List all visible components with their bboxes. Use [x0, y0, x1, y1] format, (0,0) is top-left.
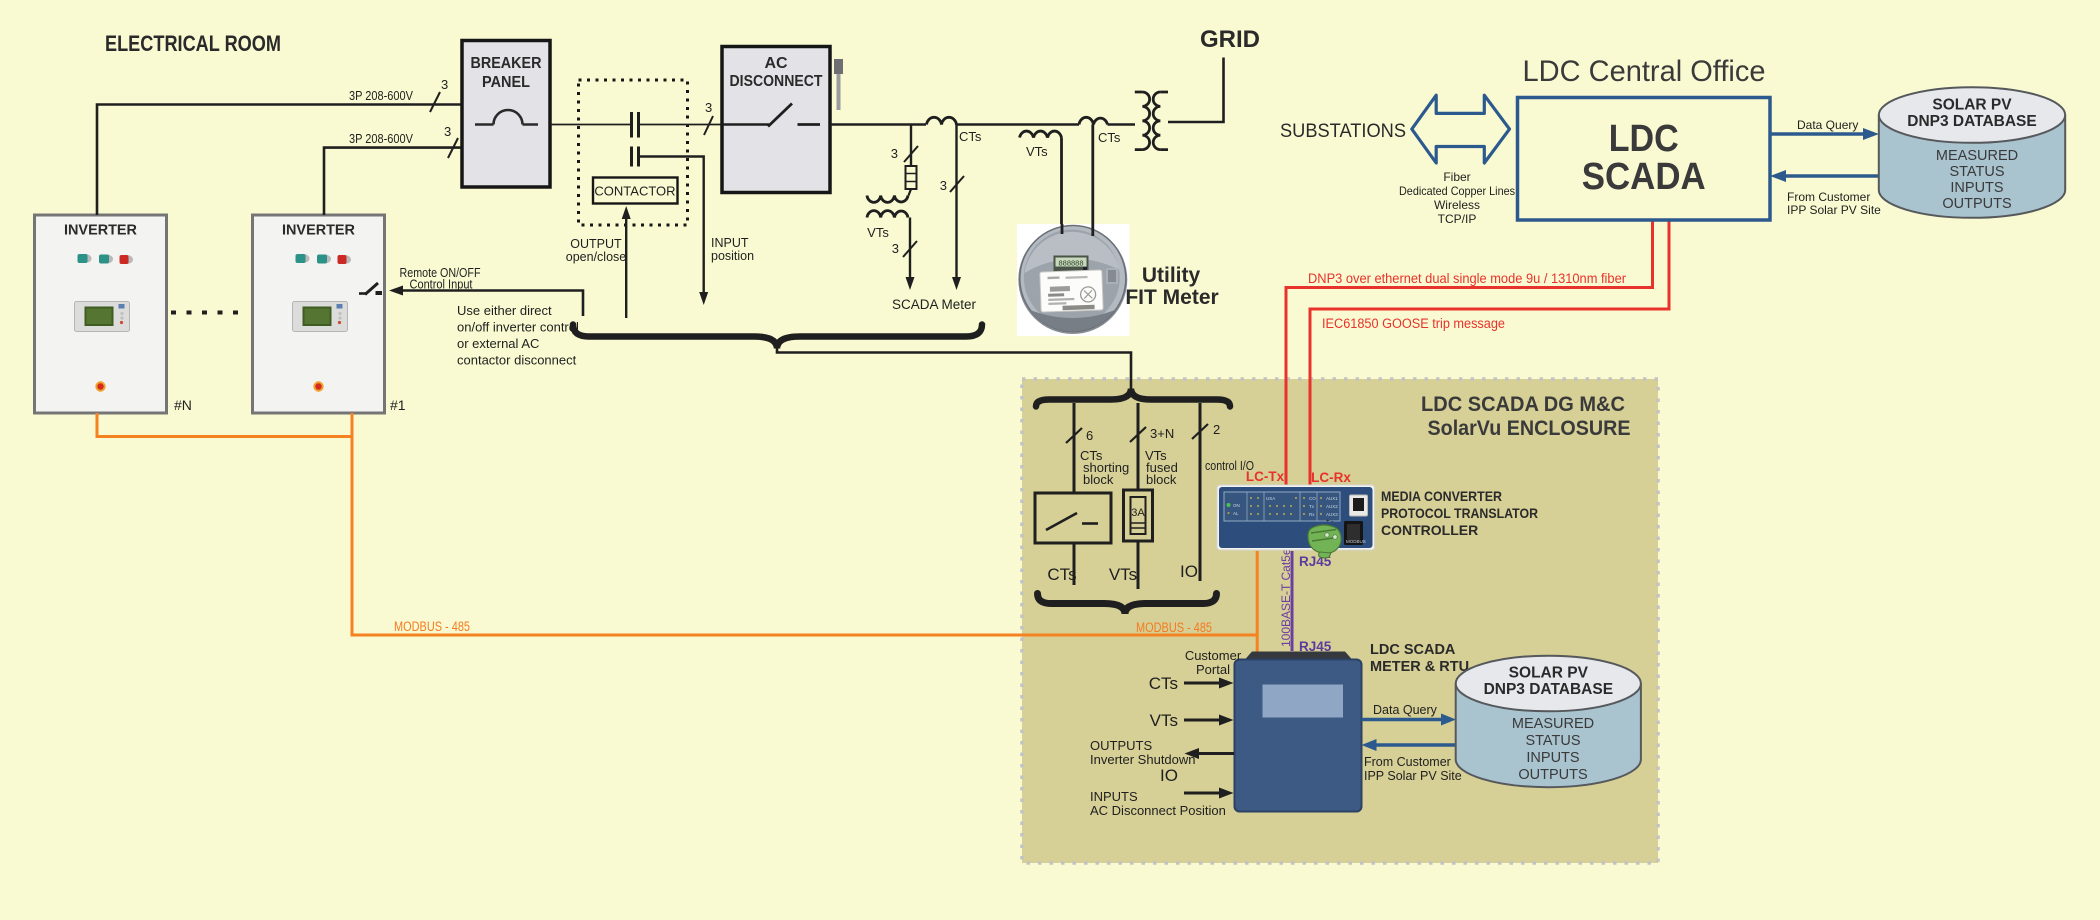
- svg-text:PANEL: PANEL: [482, 74, 530, 91]
- svg-text:Utility: Utility: [1142, 264, 1201, 287]
- svg-text:BREAKER: BREAKER: [471, 55, 542, 72]
- svg-text:Wireless: Wireless: [1434, 198, 1480, 212]
- svg-text:100BASE-T Cat5e: 100BASE-T Cat5e: [1279, 548, 1293, 647]
- svg-text:Inverter Shutdown: Inverter Shutdown: [1090, 752, 1196, 767]
- svg-text:STATUS: STATUS: [1949, 164, 2004, 180]
- svg-text:From Customer: From Customer: [1364, 755, 1451, 769]
- svg-text:#1: #1: [390, 397, 406, 413]
- svg-text:SCADA Meter: SCADA Meter: [892, 297, 977, 312]
- svg-text:3: 3: [892, 241, 899, 256]
- svg-text:Tx: Tx: [1309, 504, 1315, 509]
- svg-text:LC-Tx: LC-Tx: [1246, 469, 1285, 484]
- svg-text:INPUTS: INPUTS: [1090, 789, 1138, 804]
- svg-text:INPUTS: INPUTS: [1950, 180, 2003, 196]
- svg-text:CONTACTOR: CONTACTOR: [594, 184, 675, 199]
- svg-text:LDC SCADA: LDC SCADA: [1370, 642, 1456, 658]
- svg-text:LC-Rx: LC-Rx: [1311, 470, 1351, 485]
- svg-text:SOLAR PV: SOLAR PV: [1932, 97, 2012, 114]
- svg-text:SOLAR PV: SOLAR PV: [1509, 665, 1589, 682]
- svg-text:block: block: [1083, 472, 1114, 487]
- svg-text:OUTPUTS: OUTPUTS: [1090, 738, 1152, 753]
- svg-text:on/off inverter control: on/off inverter control: [457, 320, 579, 335]
- svg-text:AUX3: AUX3: [1326, 512, 1338, 517]
- svg-text:DISCONNECT: DISCONNECT: [730, 73, 823, 90]
- svg-text:3A: 3A: [1131, 507, 1145, 519]
- svg-text:open/close: open/close: [566, 250, 627, 264]
- svg-text:Use either direct: Use either direct: [457, 303, 552, 318]
- svg-text:OUTPUTS: OUTPUTS: [1942, 196, 2011, 212]
- svg-text:AC Disconnect Position: AC Disconnect Position: [1090, 803, 1226, 818]
- svg-text:Portal: Portal: [1196, 662, 1230, 677]
- svg-text:888888: 888888: [1058, 259, 1083, 268]
- svg-text:Data Query: Data Query: [1797, 118, 1858, 132]
- svg-text:3: 3: [891, 146, 898, 161]
- svg-text:LDC SCADA DG M&C: LDC SCADA DG M&C: [1421, 393, 1625, 416]
- svg-text:3: 3: [940, 178, 947, 193]
- svg-text:Control Input: Control Input: [410, 278, 473, 292]
- svg-text:AL: AL: [1233, 511, 1239, 516]
- svg-text:DNP3 over ethernet dual single: DNP3 over ethernet dual single mode 9u /…: [1308, 271, 1626, 286]
- svg-text:IEC61850 GOOSE trip message: IEC61850 GOOSE trip message: [1322, 316, 1505, 331]
- svg-text:ELECTRICAL ROOM: ELECTRICAL ROOM: [105, 31, 281, 56]
- svg-text:METER & RTU: METER & RTU: [1370, 659, 1469, 675]
- svg-text:Customer: Customer: [1185, 648, 1242, 663]
- svg-text:VTs: VTs: [867, 225, 889, 240]
- svg-text:IPP Solar PV Site: IPP Solar PV Site: [1364, 769, 1462, 783]
- svg-text:SUBSTATIONS: SUBSTATIONS: [1280, 121, 1406, 142]
- svg-text:OUTPUTS: OUTPUTS: [1518, 767, 1587, 783]
- svg-text:CTs: CTs: [959, 129, 982, 144]
- svg-text:LDC Central Office: LDC Central Office: [1523, 55, 1766, 88]
- svg-text:MEASURED: MEASURED: [1512, 716, 1594, 732]
- svg-text:IPP Solar PV Site: IPP Solar PV Site: [1787, 203, 1881, 217]
- svg-text:LDC: LDC: [1609, 118, 1679, 160]
- svg-text:FIT Meter: FIT Meter: [1125, 286, 1218, 309]
- svg-text:2: 2: [1213, 422, 1220, 437]
- svg-text:IO: IO: [1180, 562, 1198, 581]
- svg-text:IO: IO: [1160, 766, 1178, 785]
- svg-text:Data Query: Data Query: [1373, 703, 1438, 717]
- svg-text:INPUTS: INPUTS: [1526, 750, 1579, 766]
- svg-text:VTs: VTs: [1150, 711, 1178, 730]
- svg-text:MEASURED: MEASURED: [1936, 148, 2018, 164]
- svg-text:Dedicated Copper Lines: Dedicated Copper Lines: [1399, 184, 1515, 198]
- svg-text:+ -: + -: [1326, 519, 1333, 525]
- svg-text:ON: ON: [1233, 503, 1240, 508]
- svg-text:VTs: VTs: [1026, 144, 1048, 159]
- svg-text:USA: USA: [1266, 496, 1275, 501]
- svg-text:VTs: VTs: [1109, 565, 1137, 584]
- svg-text:MODBUS - 485: MODBUS - 485: [394, 619, 470, 634]
- svg-text:INPUT: INPUT: [711, 236, 749, 250]
- svg-text:3: 3: [444, 124, 451, 139]
- svg-text:3: 3: [441, 77, 448, 92]
- svg-text:contactor disconnect: contactor disconnect: [457, 353, 577, 368]
- svg-text:MODBUS: MODBUS: [1346, 539, 1366, 544]
- svg-text:Rx: Rx: [1309, 512, 1315, 517]
- svg-text:MODBUS - 485: MODBUS - 485: [1136, 620, 1212, 635]
- svg-text:block: block: [1146, 472, 1177, 487]
- svg-text:position: position: [711, 249, 754, 263]
- svg-text:AUX2: AUX2: [1326, 504, 1338, 509]
- svg-text:CTs: CTs: [1047, 565, 1076, 584]
- svg-text:TCP/IP: TCP/IP: [1438, 212, 1477, 226]
- svg-text:CTs: CTs: [1098, 130, 1121, 145]
- svg-text:PROTOCOL TRANSLATOR: PROTOCOL TRANSLATOR: [1381, 505, 1538, 521]
- svg-text:or external AC: or external AC: [457, 336, 539, 351]
- svg-text:From Customer: From Customer: [1787, 190, 1870, 204]
- svg-text:3P 208-600V: 3P 208-600V: [349, 88, 413, 103]
- svg-text:SolarVu ENCLOSURE: SolarVu ENCLOSURE: [1428, 417, 1631, 440]
- svg-text:6: 6: [1086, 428, 1093, 443]
- svg-text:3: 3: [705, 100, 712, 115]
- svg-text:CTs: CTs: [1149, 674, 1178, 693]
- svg-text:OUTPUT: OUTPUT: [570, 237, 622, 251]
- svg-text:DNP3 DATABASE: DNP3 DATABASE: [1907, 113, 2036, 130]
- svg-text:#N: #N: [174, 397, 192, 413]
- svg-text:DNP3 DATABASE: DNP3 DATABASE: [1484, 681, 1613, 698]
- svg-text:SCADA: SCADA: [1582, 156, 1706, 198]
- svg-text:3P 208-600V: 3P 208-600V: [349, 131, 413, 146]
- svg-text:AUX1: AUX1: [1326, 496, 1338, 501]
- svg-text:3+N: 3+N: [1150, 426, 1174, 441]
- svg-text:CO: CO: [1309, 496, 1316, 501]
- svg-text:CONTROLLER: CONTROLLER: [1381, 522, 1478, 538]
- svg-text:STATUS: STATUS: [1525, 733, 1580, 749]
- svg-text:GRID: GRID: [1200, 26, 1260, 53]
- svg-text:Fiber: Fiber: [1443, 170, 1470, 184]
- svg-text:MEDIA CONVERTER: MEDIA CONVERTER: [1381, 488, 1502, 504]
- svg-text:AC: AC: [764, 55, 788, 72]
